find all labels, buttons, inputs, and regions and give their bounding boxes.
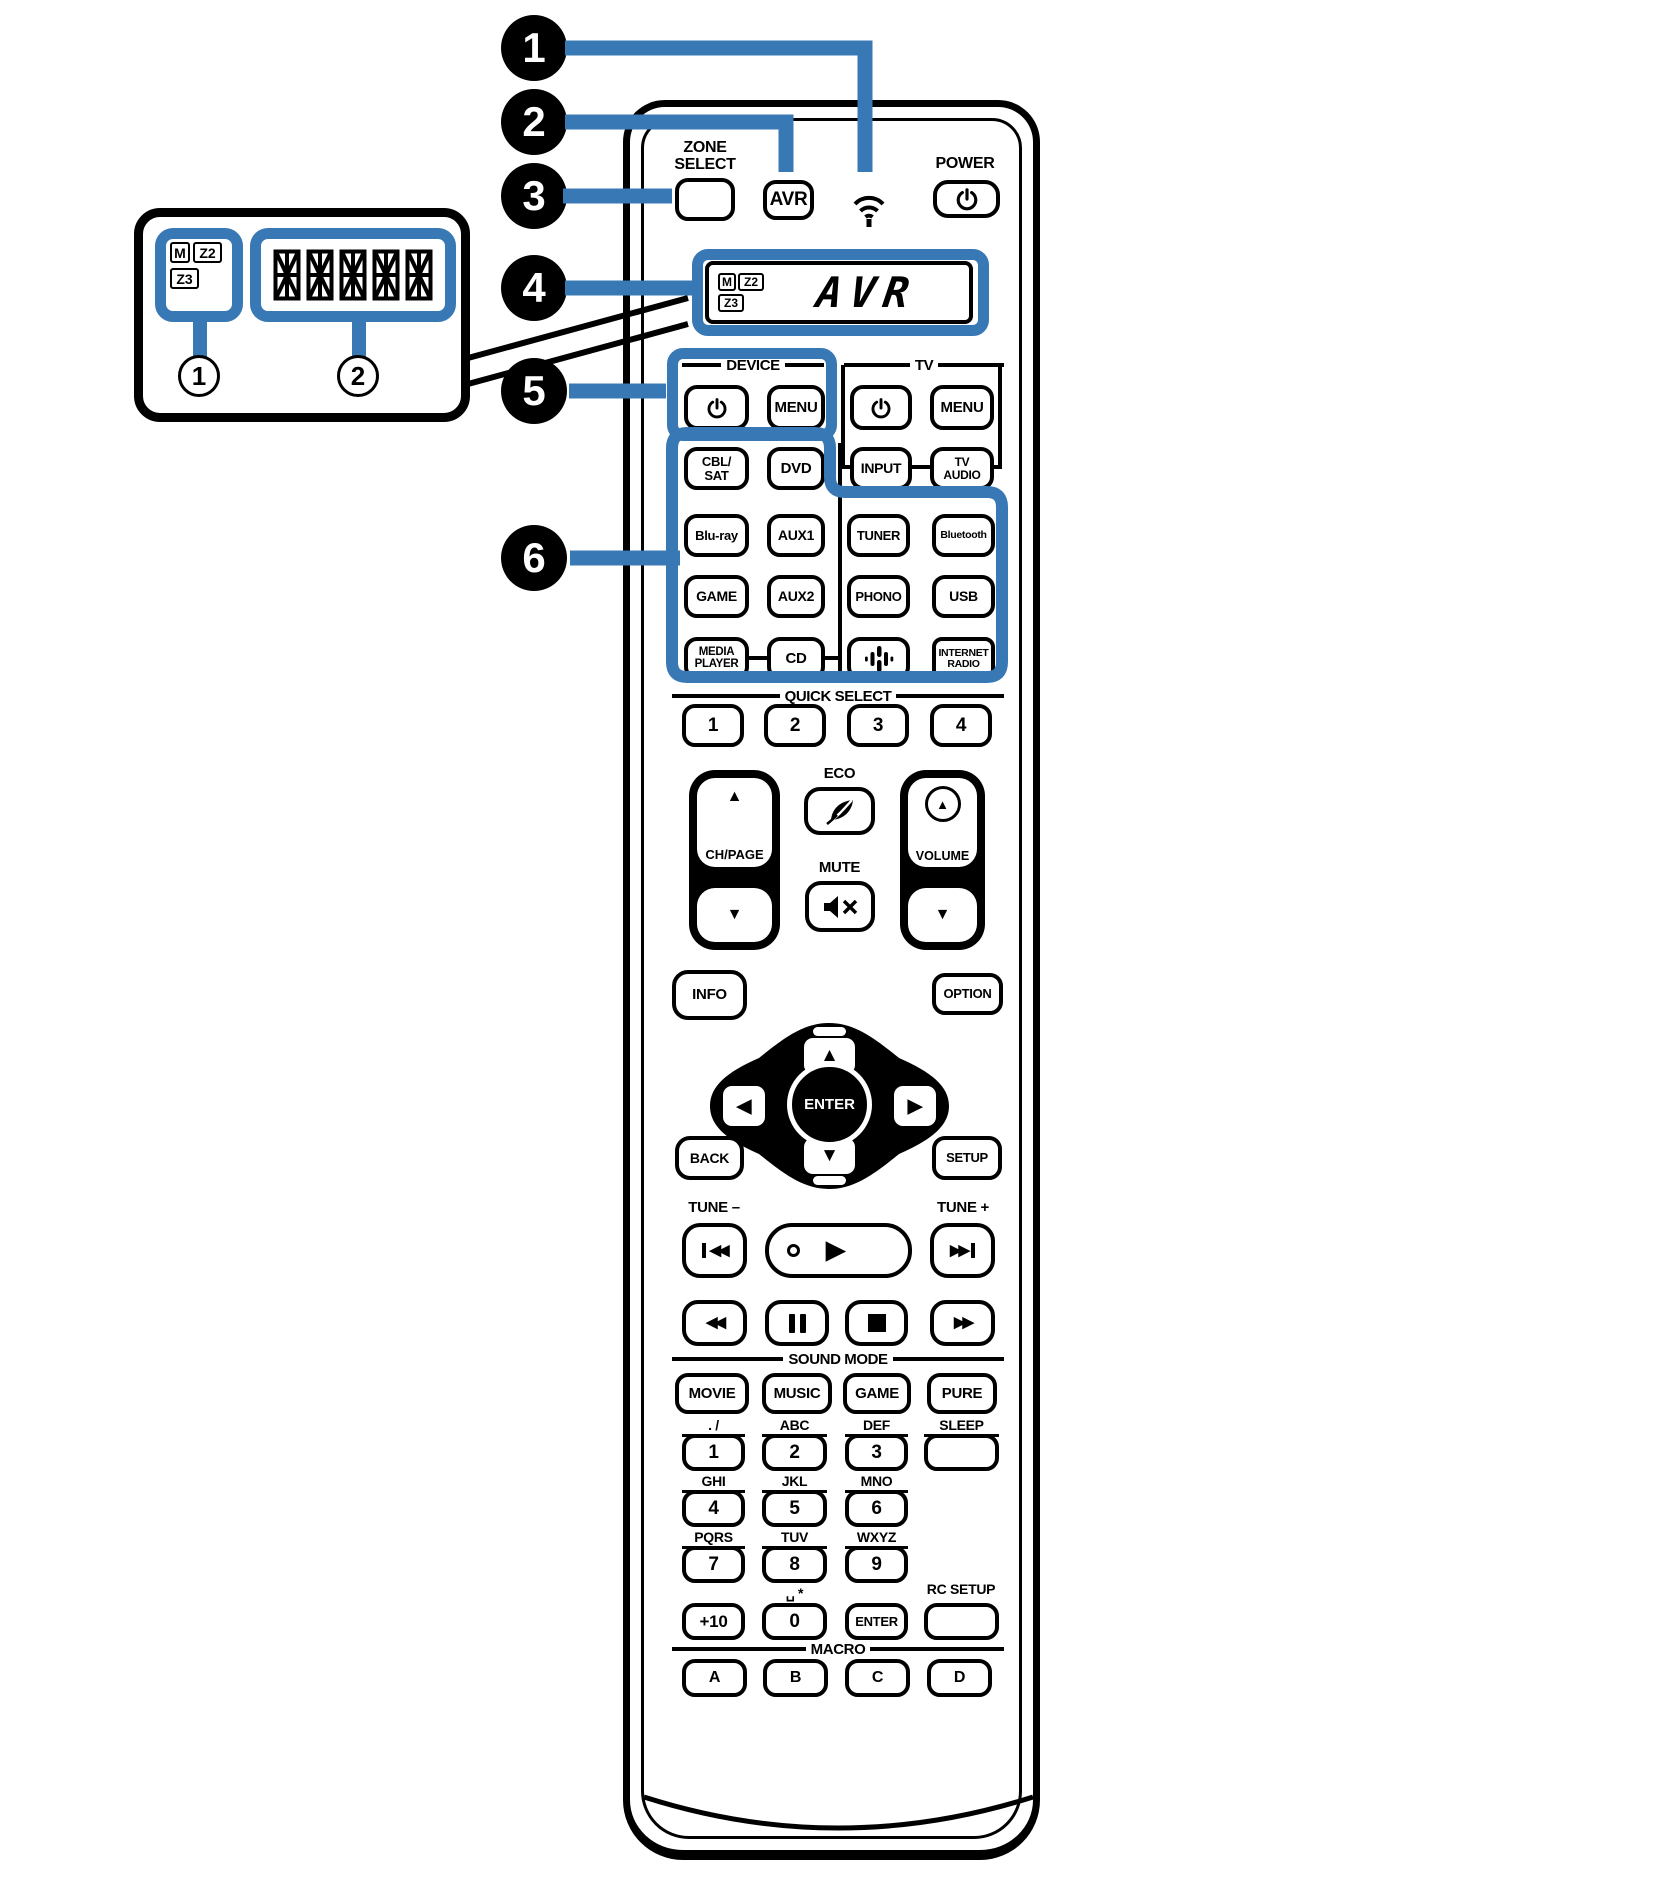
pad-bottom-dash [813, 1176, 846, 1185]
mute-button[interactable] [805, 881, 875, 932]
device-section-header: DEVICE [682, 356, 824, 374]
mute-speaker-icon [821, 893, 859, 921]
sleep-button[interactable] [924, 1434, 999, 1471]
right-arrow-icon: ▶ [908, 1095, 923, 1118]
setup-button[interactable]: SETUP [932, 1136, 1002, 1180]
play-dot-icon [787, 1244, 800, 1257]
macro-a-button[interactable]: A [682, 1659, 747, 1697]
sound-game-button[interactable]: GAME [843, 1373, 911, 1414]
display-zone2-badge: Z2 [738, 273, 764, 291]
digit-3-button[interactable]: 3 [845, 1434, 908, 1471]
phono-button[interactable]: PHONO [847, 575, 910, 618]
avr-button[interactable]: AVR [763, 180, 814, 220]
device-power-button[interactable] [684, 385, 749, 430]
volume-up-button[interactable]: ▲ VOLUME [908, 778, 977, 867]
down-arrow-icon: ▼ [820, 1145, 839, 1167]
bluray-button[interactable]: Blu-ray [684, 514, 749, 557]
digit-6-button[interactable]: 6 [845, 1490, 908, 1527]
digit-0-button[interactable]: 0 [762, 1603, 827, 1640]
power-icon [706, 397, 728, 419]
channel-page-label: CH/PAGE [705, 847, 763, 862]
channel-page-rocker: ▲ CH/PAGE ▼ [689, 770, 780, 950]
quick-select-1-button[interactable]: 1 [682, 704, 744, 747]
eco-button[interactable] [804, 787, 875, 835]
cd-button[interactable]: CD [767, 637, 825, 680]
plus-10-button[interactable]: +10 [682, 1603, 745, 1640]
page: M Z2 Z3 1 2 1 2 3 4 5 6 ZONESELECT AVR [0, 0, 1665, 1878]
play-button[interactable]: ▶ [765, 1223, 912, 1278]
digit-9-button[interactable]: 9 [845, 1546, 908, 1583]
cursor-right-button[interactable]: ▶ [894, 1086, 936, 1126]
callout-1: 1 [501, 15, 567, 81]
cbl-sat-button[interactable]: CBL/SAT [684, 447, 749, 490]
display-main-zone-badge: M [718, 273, 736, 291]
quick-select-header: QUICK SELECT [672, 687, 1004, 705]
quick-select-4-button[interactable]: 4 [930, 704, 992, 747]
dvd-button[interactable]: DVD [767, 447, 825, 490]
tuner-button[interactable]: TUNER [847, 514, 910, 557]
pause-icon [789, 1314, 806, 1333]
internet-radio-button[interactable]: INTERNETRADIO [932, 637, 995, 680]
eco-label: ECO [804, 765, 875, 782]
pause-button[interactable] [765, 1300, 829, 1346]
quick-select-3-button[interactable]: 3 [847, 704, 909, 747]
left-arrow-icon: ◀ [737, 1095, 752, 1118]
fast-forward-button[interactable]: ▶▶ [930, 1300, 995, 1346]
back-button[interactable]: BACK [675, 1136, 744, 1180]
channel-page-up-button[interactable]: ▲ CH/PAGE [697, 778, 772, 867]
skip-back-icon: ◀◀ [709, 1243, 726, 1258]
zone-select-button[interactable] [675, 178, 735, 221]
callout-6: 6 [501, 525, 567, 591]
inset-zone2-badge: Z2 [193, 242, 222, 263]
remote-display: M Z2 Z3 AVR [705, 261, 973, 324]
macro-header: MACRO [672, 1641, 1004, 1657]
device-bracket-stub-b [823, 656, 839, 660]
heos-button[interactable] [847, 637, 910, 680]
aux1-button[interactable]: AUX1 [767, 514, 825, 557]
sound-mode-header: SOUND MODE [672, 1350, 1004, 1368]
callout-2: 2 [501, 89, 567, 155]
quick-select-2-button[interactable]: 2 [764, 704, 826, 747]
inset-segment-outline [250, 228, 456, 322]
segment-character-icon [372, 249, 400, 301]
callout-5: 5 [501, 358, 567, 424]
inset-zone3-badge: Z3 [170, 268, 199, 289]
display-zone3-badge: Z3 [718, 294, 744, 312]
tune-minus-label: TUNE – [680, 1199, 748, 1216]
up-arrow-icon: ▲ [936, 797, 949, 812]
power-icon [955, 187, 979, 211]
segment-character-icon [273, 249, 301, 301]
skip-bar [702, 1243, 706, 1258]
rc-setup-label: RC SETUP [920, 1581, 1002, 1597]
callout-4: 4 [501, 255, 567, 321]
aux2-button[interactable]: AUX2 [767, 575, 825, 618]
rewind-button[interactable]: ◀◀ [682, 1300, 747, 1346]
fast-forward-icon: ▶▶ [954, 1315, 971, 1330]
tv-power-button[interactable] [850, 385, 912, 430]
bottom-chin-curve [638, 1747, 1039, 1867]
sound-music-button[interactable]: MUSIC [762, 1373, 832, 1414]
info-button[interactable]: INFO [672, 970, 747, 1020]
inset-stem-2 [352, 315, 366, 357]
digit-7-button[interactable]: 7 [682, 1546, 745, 1583]
display-text: AVR [813, 268, 920, 317]
inset-indicators: M Z2 Z3 [170, 242, 230, 308]
skip-back-button[interactable]: ◀◀ [682, 1223, 747, 1278]
callout-3: 3 [501, 163, 567, 229]
zero-space-label: ␣ * [762, 1585, 827, 1602]
down-arrow-icon: ▼ [727, 906, 743, 924]
game-button[interactable]: GAME [684, 575, 749, 618]
digit-2-button[interactable]: 2 [762, 1434, 827, 1471]
device-bracket-stub-a [747, 656, 767, 660]
tv-input-button[interactable]: INPUT [850, 447, 912, 490]
keypad-enter-button[interactable]: ENTER [845, 1603, 908, 1640]
segment-character-icon [306, 249, 334, 301]
skip-forward-icon: ▶▶ [950, 1243, 967, 1258]
inset-callout-1: 1 [178, 355, 220, 397]
device-bracket-right [838, 443, 842, 681]
heos-icon [862, 644, 896, 674]
power-label: POWER [930, 155, 1000, 173]
enter-button[interactable]: ENTER [787, 1062, 872, 1147]
power-icon [870, 397, 892, 419]
volume-rocker: ▲ VOLUME ▼ [900, 770, 985, 950]
digit-8-button[interactable]: 8 [762, 1546, 827, 1583]
inset-stem-1 [193, 315, 207, 357]
sound-pure-button[interactable]: PURE [927, 1373, 997, 1414]
skip-bar [971, 1243, 975, 1258]
channel-page-down-button[interactable]: ▼ [697, 888, 772, 942]
remote-control-body: ZONESELECT AVR POWER M Z2 [623, 100, 1040, 1860]
tv-bracket-stub-b [912, 465, 930, 469]
bluetooth-button[interactable]: Bluetooth [932, 514, 995, 557]
volume-up-circle-icon: ▲ [925, 786, 961, 822]
macro-c-button[interactable]: C [845, 1659, 910, 1697]
rewind-icon: ◀◀ [706, 1315, 723, 1330]
volume-label: VOLUME [916, 849, 969, 863]
digit-1-button[interactable]: 1 [682, 1434, 745, 1471]
skip-forward-button[interactable]: ▶▶ [930, 1223, 995, 1278]
cursor-left-button[interactable]: ◀ [723, 1086, 765, 1126]
digit-4-button[interactable]: 4 [682, 1490, 745, 1527]
option-button[interactable]: OPTION [932, 973, 1003, 1015]
tv-bracket-right [998, 365, 1002, 469]
segment-character-icon [339, 249, 367, 301]
sound-movie-button[interactable]: MOVIE [675, 1373, 749, 1414]
inset-callout-2: 2 [337, 355, 379, 397]
play-icon: ▶ [826, 1238, 845, 1264]
up-arrow-icon: ▲ [727, 788, 743, 806]
tv-audio-button[interactable]: TVAUDIO [930, 447, 994, 490]
inset-main-zone-badge: M [170, 242, 190, 263]
stop-icon [868, 1314, 886, 1332]
down-arrow-icon: ▼ [935, 906, 951, 924]
digit-5-button[interactable]: 5 [762, 1490, 827, 1527]
eco-leaf-icon [824, 795, 856, 827]
tv-menu-button[interactable]: MENU [930, 385, 994, 430]
segment-character-icon [405, 249, 433, 301]
stop-button[interactable] [845, 1300, 908, 1346]
device-menu-button[interactable]: MENU [767, 385, 825, 430]
usb-button[interactable]: USB [932, 575, 995, 618]
signal-transmission-icon [846, 177, 892, 227]
rc-setup-button[interactable] [924, 1603, 999, 1640]
macro-b-button[interactable]: B [763, 1659, 828, 1697]
volume-down-button[interactable]: ▼ [908, 888, 977, 942]
pad-top-dash [813, 1027, 846, 1036]
mute-label: MUTE [804, 859, 875, 876]
macro-d-button[interactable]: D [927, 1659, 992, 1697]
zone-select-label: ZONESELECT [658, 139, 752, 173]
power-button[interactable] [933, 180, 1000, 218]
tv-section-header: TV [844, 356, 1004, 374]
media-player-button[interactable]: MEDIAPLAYER [684, 637, 749, 680]
tune-plus-label: TUNE + [928, 1199, 998, 1216]
